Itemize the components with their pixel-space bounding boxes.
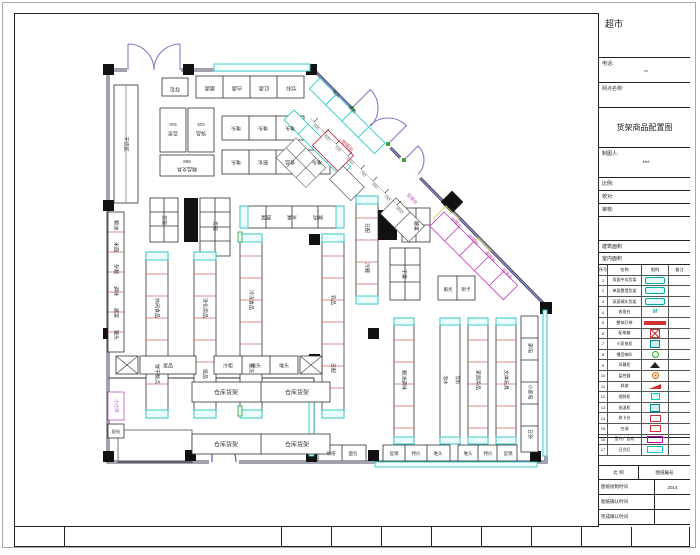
- legend-row: 5整体灯带: [599, 318, 690, 329]
- plan-label: 酱菜: [113, 308, 120, 318]
- plan-label: 膨化: [258, 159, 268, 166]
- legend-symbol-pill: [645, 298, 665, 305]
- plan-label: 蔬菜: [261, 214, 271, 221]
- legend-symbol-txtM: M: [653, 309, 657, 315]
- legend-symbol-rect-teal: [650, 404, 660, 412]
- plan-label: 堆头: [231, 125, 241, 132]
- plan-label: 850: [371, 182, 380, 191]
- plan-label: 乳品: [330, 295, 337, 305]
- plan-label: 小仓库: [113, 399, 120, 413]
- plan-label: 150: [383, 194, 392, 203]
- plan-label: 750: [359, 170, 368, 179]
- plan-label: 日配: [364, 223, 370, 233]
- legend-row: 3双面端头货架: [599, 297, 690, 308]
- legend-row: 6配电箱: [599, 329, 690, 340]
- plan-label: 面包: [349, 450, 358, 457]
- draw-time-row: 图纸绘制时间2014: [599, 480, 690, 495]
- legend-row: 13低温柜: [599, 403, 690, 414]
- legend-table: 序号名称 图例备注 1双面中岛货架2单面靠墙货架3双面端头货架4收银台M5整体灯…: [599, 265, 690, 438]
- plan-label: 家电: [527, 343, 534, 353]
- legend-symbol-wedge-red: [649, 384, 661, 389]
- legend-row: 12保鲜柜: [599, 392, 690, 403]
- plan-label: 配电: [112, 428, 120, 434]
- legend-row: 4收银台M: [599, 307, 690, 318]
- bottom-header: 比 例图纸编号: [599, 466, 690, 480]
- plan-label: 存包: [170, 86, 180, 93]
- legend-row: 2单面靠墙货架: [599, 286, 690, 297]
- site-label: 网点名称:: [602, 86, 623, 92]
- plan-label: 促销台: [405, 192, 420, 207]
- plan-label: 水果: [287, 214, 297, 221]
- plan-label: 家居用品: [475, 370, 482, 390]
- legend-symbol-rect-cyan-s: [651, 393, 660, 400]
- legend-row: 7小家电柜: [599, 339, 690, 350]
- plan-label: 杂粮: [113, 264, 120, 274]
- building-area-row: 建筑面积: [599, 241, 690, 253]
- check-row: 校对:: [599, 191, 690, 204]
- plan-label: 蛋品: [163, 362, 173, 369]
- plan-label: 饼干糕点: [154, 364, 161, 384]
- plan-label: 促销: [504, 450, 513, 457]
- plan-label: 干货区: [123, 136, 130, 151]
- plan-label: 冷藏: [364, 263, 371, 273]
- legend-symbol-box-red-s: [650, 415, 661, 422]
- plan-label: 小家电: [527, 384, 534, 399]
- finish-time-row: 完成确认时间: [599, 510, 690, 525]
- plan-label: 酒水: [442, 376, 449, 385]
- plan-label: 烟酒: [205, 85, 215, 92]
- drawing-title: 货架商品配置图: [599, 108, 690, 148]
- blank-area: [599, 438, 690, 466]
- title-block: 超市 电话: ** 网点名称: 货架商品配置图 制图人: *** 比例: 校对:…: [598, 13, 690, 527]
- legend-symbol-circle-orange: [652, 372, 659, 379]
- legend-row: 11斜坡: [599, 382, 690, 393]
- legend-symbol-rect-teal: [650, 340, 660, 348]
- site-cell: 网点名称:: [599, 83, 690, 108]
- legend-body: 1双面中岛货架2单面靠墙货架3双面端头货架4收银台M5整体灯带6配电箱7小家电柜…: [599, 276, 690, 456]
- legend-row: 8播音喇叭: [599, 350, 690, 361]
- plan-label: 干果: [401, 269, 407, 279]
- plan-label: 堆头: [285, 125, 295, 132]
- plan-label: 罐头: [113, 330, 120, 340]
- plan-label: 堆头: [258, 125, 268, 132]
- legend-row: 15空调: [599, 424, 690, 435]
- plan-label: 制卡: [462, 286, 471, 293]
- plan-label: 日配: [330, 363, 336, 373]
- plan-label: 908: [183, 159, 191, 164]
- drafter-value: ***: [602, 161, 690, 167]
- project-name: 超市: [599, 13, 690, 58]
- plan-label: 仓库货架: [214, 441, 238, 449]
- plan-label: 米面: [113, 242, 120, 252]
- phone-label: 电话:: [602, 61, 613, 67]
- blank-row: [599, 217, 690, 241]
- review-row: 审核:: [599, 204, 690, 217]
- legend-row: 14收卡台: [599, 413, 690, 424]
- plan-label: 冷冻食品: [248, 290, 255, 310]
- legend-row: 9风幕柜: [599, 360, 690, 371]
- plan-label: 饮料: [454, 376, 461, 385]
- legend-symbol-bar-red: [644, 321, 666, 325]
- plan-label: 精品文具: [177, 166, 197, 173]
- confirm-time-row: 图纸确认时间: [599, 495, 690, 510]
- plan-label: 烘焙: [327, 450, 336, 457]
- phone-value: **: [602, 70, 690, 76]
- drafter-label: 制图人:: [602, 151, 618, 157]
- plan-label: 堆头: [231, 159, 241, 166]
- plan-label: 日杂: [527, 429, 533, 439]
- plan-label: 堆头: [434, 450, 443, 457]
- plan-label: 仓库货架: [285, 441, 309, 449]
- plan-label: 洗化用品: [202, 298, 209, 318]
- plan-label: 堆头: [312, 159, 322, 166]
- plan-label: 堆头: [251, 362, 261, 369]
- floor-plan: 存包烟酒白酒红酒饮料916百货915饰品908精品文具堆头堆头堆头堆头膨化食品堆…: [14, 13, 598, 527]
- drafter-cell: 制图人: ***: [599, 148, 690, 178]
- phone-cell: 电话: **: [599, 58, 690, 83]
- legend-row: 10监控器: [599, 371, 690, 382]
- plan-label: 百货: [168, 130, 178, 137]
- plan-label: 糖果: [413, 221, 420, 231]
- plan-label: 仓库货架: [285, 389, 309, 397]
- plan-label: 鲜肉: [313, 214, 323, 221]
- scale-row: 比例:: [599, 178, 690, 191]
- legend-symbol-circle-green: [652, 351, 659, 358]
- plan-label: 货架: [212, 221, 219, 231]
- legend-header: 序号名称 图例备注: [599, 265, 690, 276]
- plan-label: 冷柜: [223, 362, 233, 369]
- plan-label: 915: [197, 122, 205, 127]
- plan-label: 仓库货架: [214, 389, 238, 397]
- revision-strip: [14, 527, 690, 547]
- plan-label: 休闲食品: [154, 298, 161, 318]
- plan-label: 粮油: [113, 220, 120, 230]
- plan-label: 特价: [484, 450, 493, 456]
- plan-label: 食品: [285, 159, 295, 166]
- plan-label: 调味: [113, 286, 120, 296]
- plan-label: 服务: [444, 286, 453, 293]
- plan-label: 货架: [161, 215, 168, 225]
- interior-area-row: 室内面积: [599, 253, 690, 265]
- legend-symbol-pill: [645, 277, 665, 284]
- plan-label: 红酒: [259, 85, 269, 92]
- plan-label: 粮油调味: [401, 370, 408, 390]
- plan-label: 饰品: [196, 130, 206, 137]
- plan-label: 纸品: [202, 369, 209, 379]
- legend-symbol-pill: [645, 287, 665, 294]
- plan-label: 堆头: [464, 450, 473, 457]
- plan-label: 特价: [412, 450, 421, 456]
- plan-label: 堆头: [279, 362, 289, 369]
- legend-symbol-tri-black: [650, 362, 660, 368]
- legend-symbol-box-x-red: [650, 329, 660, 338]
- plan-label: 916: [169, 122, 177, 127]
- legend-row: 1双面中岛货架: [599, 276, 690, 287]
- drawing-sheet: 存包烟酒白酒红酒饮料916百货915饰品908精品文具堆头堆头堆头堆头膨化食品堆…: [0, 0, 700, 555]
- plan-label: 白酒: [232, 85, 242, 92]
- plan-label: 促销: [390, 450, 399, 457]
- plan-label: 文体玩具: [503, 370, 510, 390]
- legend-symbol-box-red-s: [650, 425, 661, 432]
- plan-label: 饮料: [286, 85, 296, 92]
